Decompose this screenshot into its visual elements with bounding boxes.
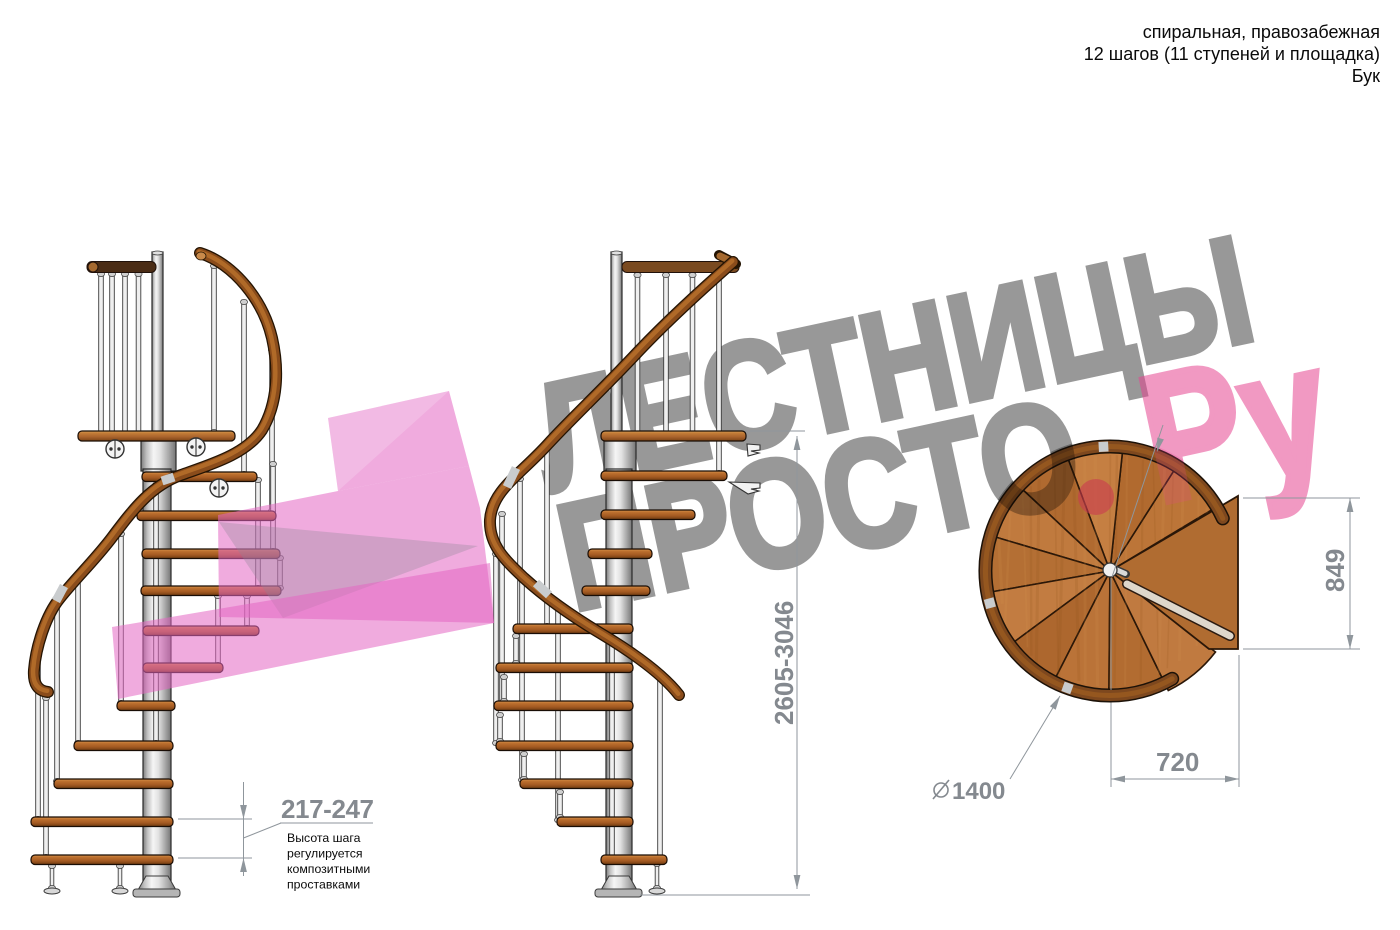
svg-text:2605-3046: 2605-3046	[769, 601, 799, 725]
svg-text:Высота шага: Высота шага	[287, 831, 361, 845]
svg-text:12 шагов (11 ступеней и площад: 12 шагов (11 ступеней и площадка)	[1084, 44, 1380, 64]
svg-text:720: 720	[1156, 747, 1199, 777]
svg-text:Бук: Бук	[1352, 66, 1380, 86]
svg-text:регулируется: регулируется	[287, 847, 363, 861]
svg-text:спиральная, правозабежная: спиральная, правозабежная	[1143, 22, 1380, 42]
svg-text:проставками: проставками	[287, 878, 360, 892]
svg-text:849: 849	[1320, 549, 1350, 592]
svg-text:композитными: композитными	[287, 862, 370, 876]
svg-text:217-247: 217-247	[281, 794, 374, 824]
svg-text:1400: 1400	[952, 778, 1005, 805]
